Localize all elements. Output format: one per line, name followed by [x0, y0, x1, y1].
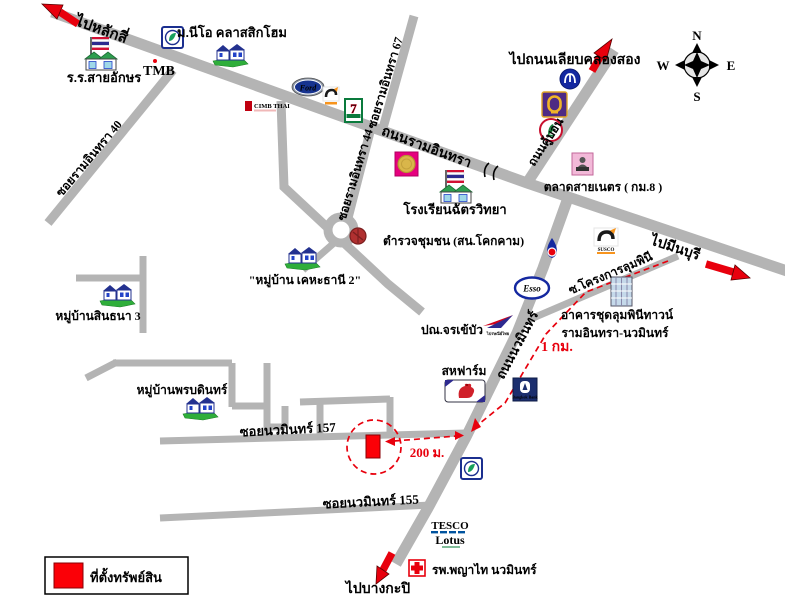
arrow-min-buri: [706, 264, 733, 272]
label-sai-net-market: ตลาดสายเนตร ( กม.8 ): [544, 180, 662, 194]
compass-n: N: [692, 28, 702, 43]
tesco-logo-text: TESCO: [431, 520, 469, 532]
compass-rose-icon: N E S W: [657, 28, 736, 104]
khehathani2-village-icon: [285, 247, 320, 270]
label-to-bang-kapi: ไปบางกะปิ: [344, 579, 411, 597]
market-icon: [572, 153, 593, 175]
seven-eleven-logo-icon: 7: [345, 99, 362, 122]
ford-logo-text: Ford: [299, 84, 317, 93]
scb-bank-logo-icon: [542, 92, 567, 117]
label-sai-aksorn-school: ร.ร.สายอักษร: [67, 70, 142, 85]
phonbodin-village-icon: [183, 397, 218, 420]
label-post-office: ปณ.จรเข้บัว: [421, 323, 483, 337]
compass-w: W: [657, 58, 670, 73]
seven-logo-text: 7: [350, 101, 357, 116]
label-to-khlong-song: ไปถนนเลียบคลองสอง: [508, 50, 641, 68]
tmb-logo-text: TMB: [143, 64, 175, 79]
bangkok-bank-logo-icon: Bangkok Bank: [512, 378, 538, 401]
road-soi-ram-inthra-40: [48, 70, 173, 223]
cimb-logo-text: CIMB THAI: [254, 103, 290, 110]
thai-post-text: ไปรษณีย์ไทย: [486, 330, 510, 336]
lotus-logo-text: Lotus: [435, 533, 465, 547]
label-community-police: ตำรวจชุมชน (สน.โคกคาม): [383, 233, 524, 249]
label-sinthana3-village: หมู่บ้านสินธนา 3: [55, 309, 140, 324]
arrow-min-buri-head: [731, 265, 750, 280]
label-lumpini-condo-1: อาคารชุดลุมพินีทาวน์: [561, 308, 674, 323]
saha-farm-logo-icon: [445, 380, 485, 402]
gsb-bank-logo-icon: [395, 152, 418, 176]
property-marker: [366, 435, 380, 458]
thailand-post-logo-icon: ไปรษณีย์ไทย: [483, 315, 513, 336]
ford-logo-icon: Ford: [292, 78, 324, 96]
susco-logo-icon-2: SUSCO: [594, 228, 618, 254]
label-soi-ram-inthra-40: ซอยรามอินทรา 40: [53, 118, 125, 200]
label-distance-200m: 200 ม.: [410, 445, 445, 460]
tesco-lotus-logo-icon: TESCO Lotus: [431, 520, 469, 547]
bangchak-logo-icon-2: [461, 458, 482, 479]
cimb-logo-icon: CIMB THAI: [245, 101, 290, 112]
compass-s: S: [693, 89, 700, 104]
label-road-ram-inthra: ถนนรามอินทรา: [379, 123, 473, 171]
hospital-cross-icon: [409, 560, 425, 576]
chat-witthaya-school-icon: [440, 170, 472, 203]
bangkok-bank-text: Bangkok Bank: [512, 395, 538, 400]
tmb-logo-icon: TMB: [143, 59, 175, 79]
label-neo-classic-home: ม.นีโอ คลาสสิกโฮม: [177, 24, 287, 40]
label-phonbodin-village: หมู่บ้านพรบดินทร์: [137, 383, 228, 398]
label-lumpini-condo-2: รามอินทรา-นวมินทร์: [561, 326, 669, 340]
condo-building-icon: [611, 277, 632, 306]
label-saha-farm: สหฟาร์ม: [442, 364, 487, 378]
police-spot-icon: [350, 228, 366, 244]
roads-layer: [48, 12, 785, 564]
sinthana3-village-icon: [100, 284, 135, 307]
blue-circle-bank-logo-icon: [560, 69, 580, 89]
map-canvas: N E S W TMB CIMB THAI Ford 7: [0, 0, 785, 600]
esso-logo-icon: Esso: [515, 278, 549, 299]
esso-logo-text: Esso: [522, 284, 541, 294]
label-distance-1km: 1 กม.: [541, 340, 573, 355]
label-khehathani2-village: "หมู่บ้าน เคหะธานี 2": [249, 273, 361, 288]
arrow-bang-kapi: [383, 553, 392, 570]
susco-logo-icon: [323, 87, 339, 105]
neo-classic-home-icon: [213, 44, 248, 67]
legend-property-label: ที่ตั้งทรัพย์สิน: [90, 567, 162, 585]
legend: ที่ตั้งทรัพย์สิน: [45, 557, 188, 594]
compass-e: E: [727, 58, 736, 73]
legend-property-swatch: [54, 563, 83, 588]
label-chat-witthaya-school: โรงเรียนฉัตรวิทยา: [402, 201, 506, 217]
label-phyathai-hospital: รพ.พญาไท นวมินทร์: [432, 562, 537, 577]
